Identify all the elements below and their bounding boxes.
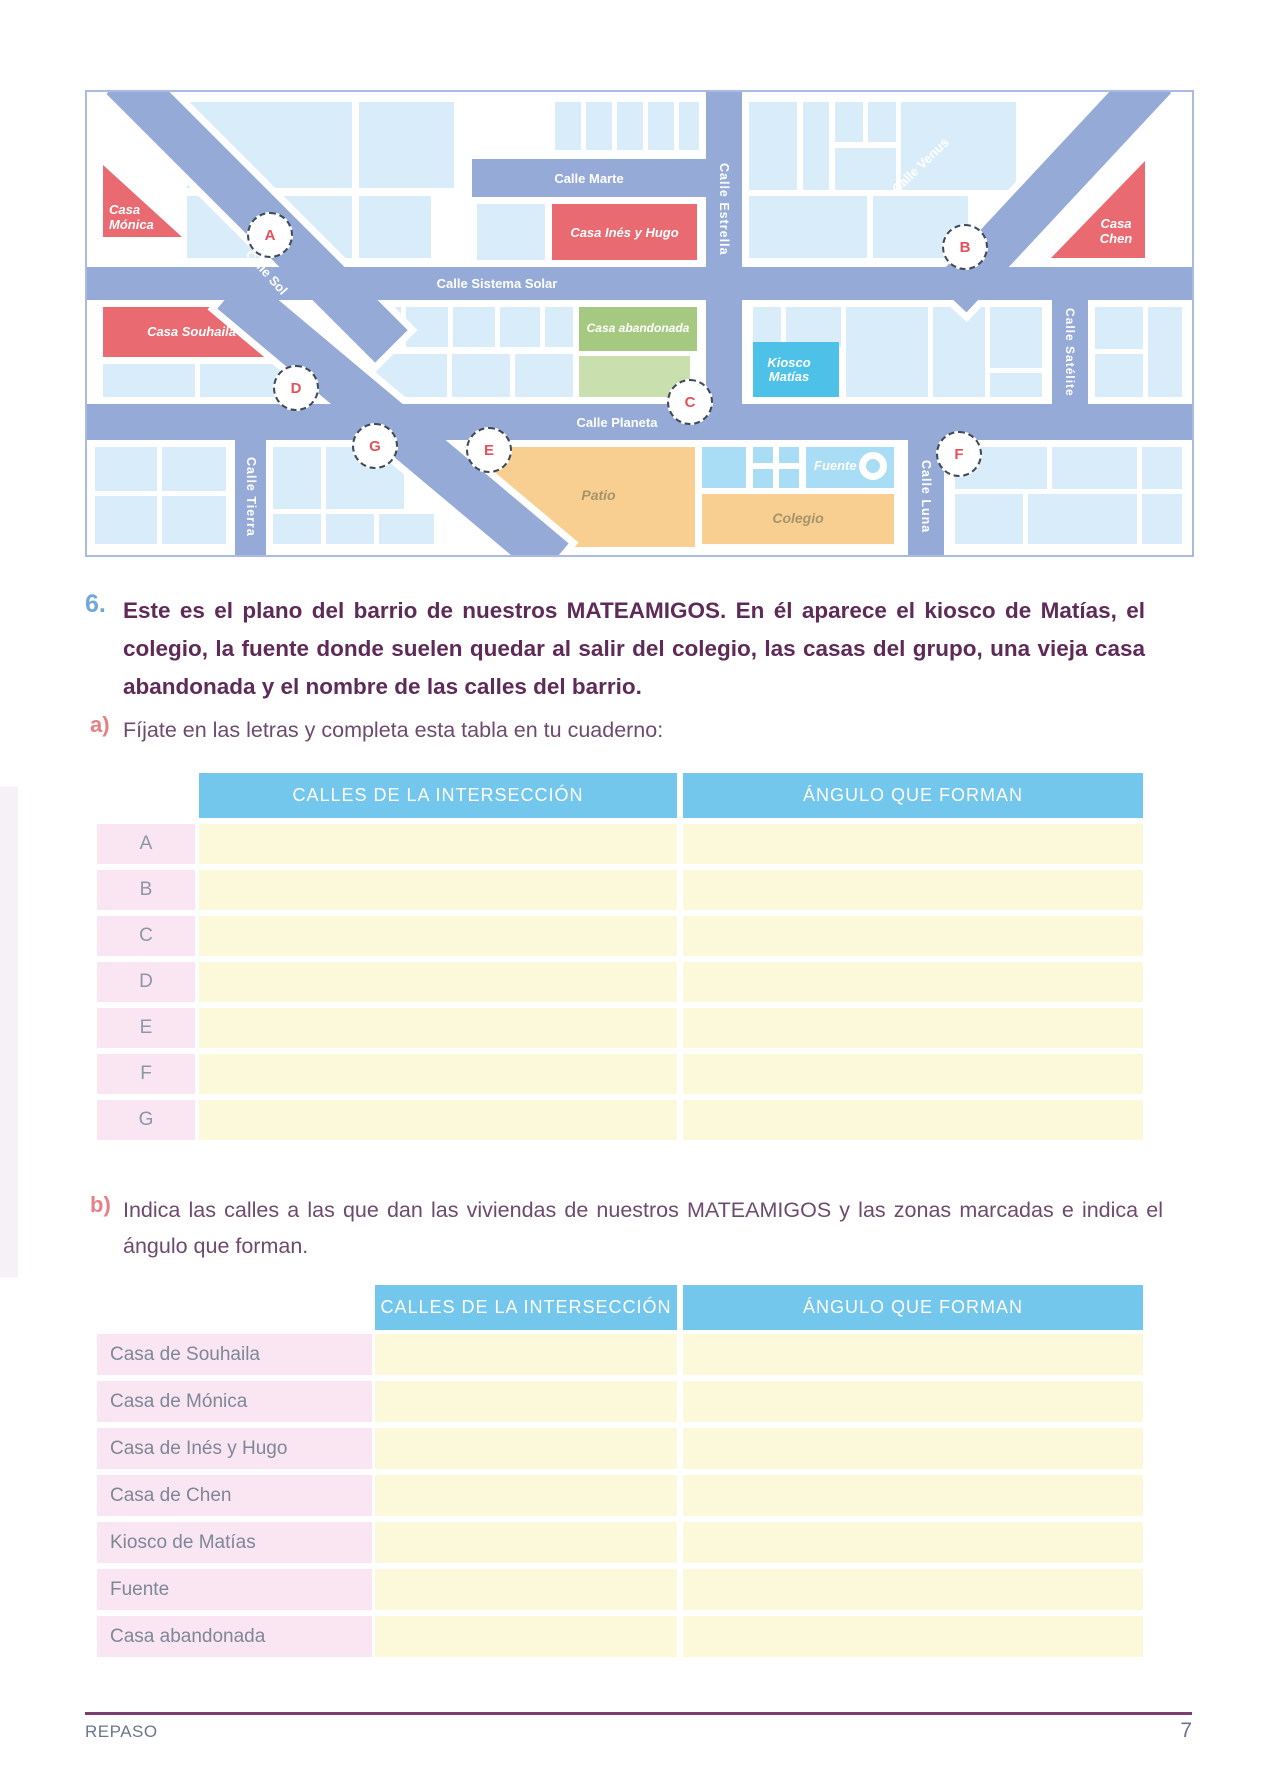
row-label-casa-ines-hugo: Casa de Inés y Hugo: [97, 1428, 372, 1469]
table-row: Casa de Souhaila: [97, 1334, 1143, 1375]
row-label-F: F: [97, 1054, 195, 1094]
answer-cell: [199, 824, 677, 864]
table-b-header-calles: CALLES DE LA INTERSECCIÓN: [375, 1285, 677, 1330]
city-block: [803, 102, 829, 190]
answer-cell: [683, 1008, 1143, 1048]
row-label-casa-souhaila: Casa de Souhaila: [97, 1334, 372, 1375]
marker-C-letter: C: [685, 394, 696, 411]
table-a-header-angulo: ÁNGULO QUE FORMAN: [683, 773, 1143, 818]
table-row: E: [97, 1008, 1143, 1048]
city-block: [477, 204, 545, 260]
calle-sistema-solar-label: Calle Sistema Solar: [337, 267, 657, 300]
row-label-C: C: [97, 916, 195, 956]
answer-cell: [375, 1569, 677, 1610]
row-label-casa-monica: Casa de Mónica: [97, 1381, 372, 1422]
answer-cell: [375, 1475, 677, 1516]
page-edge-strip: [0, 787, 18, 1277]
table-row: G: [97, 1100, 1143, 1140]
city-block: [500, 307, 540, 347]
marker-E-letter: E: [484, 442, 494, 459]
answer-cell: [199, 1054, 677, 1094]
row-label-G: G: [97, 1100, 195, 1140]
answer-cell: [375, 1334, 677, 1375]
part-b-instruction: Indica las calles a las que dan las vivi…: [123, 1192, 1163, 1264]
marker-E: E: [466, 427, 512, 473]
city-block: [586, 102, 612, 150]
city-block: [326, 514, 374, 544]
table-a: CALLES DE LA INTERSECCIÓN ÁNGULO QUE FOR…: [97, 773, 1143, 1146]
city-block: [359, 196, 431, 258]
row-label-casa-chen: Casa de Chen: [97, 1475, 372, 1516]
row-label-A: A: [97, 824, 195, 864]
table-row: Casa abandonada: [97, 1616, 1143, 1657]
calle-estrella-label: Calle Estrella: [709, 127, 739, 292]
answer-cell: [375, 1381, 677, 1422]
answer-cell: [375, 1616, 677, 1657]
city-block: [955, 494, 1023, 544]
table-row: Casa de Chen: [97, 1475, 1143, 1516]
city-block: [1142, 447, 1182, 489]
row-label-D: D: [97, 962, 195, 1002]
city-block: [1052, 447, 1137, 489]
city-block: [933, 342, 985, 398]
calle-tierra-label: Calle Tierra: [236, 444, 266, 550]
city-block: [379, 514, 434, 544]
city-block: [103, 364, 195, 400]
city-block: [617, 102, 643, 150]
city-block: [753, 307, 781, 347]
city-block: [990, 342, 1042, 368]
city-block: [846, 307, 928, 347]
city-block: [1148, 307, 1182, 398]
answer-cell: [683, 1475, 1143, 1516]
footer-page-number: 7: [1160, 1719, 1192, 1743]
answer-cell: [683, 1334, 1143, 1375]
footer-section-title: REPASO: [85, 1722, 158, 1742]
casa-abandonada-building: Casa abandonada: [579, 307, 697, 351]
colegio-building: Colegio: [702, 494, 894, 544]
table-row: F: [97, 1054, 1143, 1094]
answer-cell: [683, 1428, 1143, 1469]
fountain-area: Fuente: [806, 444, 894, 488]
problem-statement: Este es el plano del barrio de nuestros …: [123, 592, 1145, 706]
city-block: [359, 102, 454, 188]
city-block: [545, 307, 573, 347]
answer-cell: [683, 1381, 1143, 1422]
city-block: [1142, 494, 1182, 544]
city-block: [452, 354, 510, 400]
city-block: [162, 496, 226, 544]
casa-monica-building: Casa Mónica: [103, 165, 182, 237]
row-label-casa-abandonada: Casa abandonada: [97, 1616, 372, 1657]
answer-cell: [375, 1522, 677, 1563]
fountain-plaza-tile: [702, 444, 746, 488]
city-block: [868, 102, 896, 142]
table-b-header-angulo: ÁNGULO QUE FORMAN: [683, 1285, 1143, 1330]
city-block: [648, 102, 674, 150]
answer-cell: [199, 916, 677, 956]
answer-cell: [683, 962, 1143, 1002]
marker-G-letter: G: [369, 438, 381, 455]
fuente-label: Fuente: [806, 444, 894, 488]
city-block: [453, 307, 495, 347]
city-block: [95, 447, 157, 491]
table-row: B: [97, 870, 1143, 910]
city-block: [786, 307, 841, 347]
kiosco-matias-building: Kiosco Matías: [753, 342, 839, 398]
calle-planeta-label: Calle Planeta: [467, 404, 767, 440]
city-block: [1028, 494, 1137, 544]
answer-cell: [199, 870, 677, 910]
table-row: Casa de Inés y Hugo: [97, 1428, 1143, 1469]
row-label-E: E: [97, 1008, 195, 1048]
city-block: [1095, 354, 1143, 398]
answer-cell: [199, 1100, 677, 1140]
city-block: [162, 447, 226, 491]
part-a-label: a): [90, 712, 110, 738]
row-label-B: B: [97, 870, 195, 910]
casa-abandonada-label: Casa abandonada: [579, 307, 697, 351]
marker-D: D: [273, 365, 319, 411]
marker-G: G: [352, 423, 398, 469]
answer-cell: [199, 962, 677, 1002]
city-block: [273, 514, 321, 544]
answer-cell: [683, 870, 1143, 910]
fountain-plaza-grid: [753, 444, 799, 488]
marker-D-letter: D: [291, 380, 302, 397]
part-a-instruction: Fíjate en las letras y completa esta tab…: [123, 712, 1145, 748]
marker-F-letter: F: [954, 446, 963, 463]
table-row: C: [97, 916, 1143, 956]
city-block: [835, 102, 863, 142]
casa-monica-label: Casa Mónica: [103, 165, 165, 237]
answer-cell: [683, 1616, 1143, 1657]
table-row: Fuente: [97, 1569, 1143, 1610]
problem-number: 6.: [85, 590, 106, 619]
marker-A: A: [247, 212, 293, 258]
calle-satelite-label: Calle Satélite: [1055, 300, 1085, 404]
neighborhood-map: Casa Mónica Casa Souhaila Casa Inés y Hu…: [85, 90, 1194, 557]
table-row: A: [97, 824, 1143, 864]
city-block: [273, 447, 321, 509]
table-b: CALLES DE LA INTERSECCIÓN ÁNGULO QUE FOR…: [97, 1285, 1143, 1663]
answer-cell: [683, 916, 1143, 956]
answer-cell: [683, 1569, 1143, 1610]
table-a-header-calles: CALLES DE LA INTERSECCIÓN: [199, 773, 677, 818]
marker-B: B: [942, 224, 988, 270]
part-b-label: b): [90, 1192, 111, 1218]
table-row: Casa de Mónica: [97, 1381, 1143, 1422]
table-row: Kiosco de Matías: [97, 1522, 1143, 1563]
answer-cell: [683, 1522, 1143, 1563]
answer-cell: [375, 1428, 677, 1469]
marker-A-letter: A: [265, 227, 276, 244]
marker-B-letter: B: [960, 239, 971, 256]
answer-cell: [683, 1100, 1143, 1140]
city-block: [990, 373, 1042, 398]
city-block: [749, 196, 867, 258]
marker-F: F: [936, 431, 982, 477]
calle-marte-label: Calle Marte: [472, 159, 706, 197]
colegio-label: Colegio: [702, 494, 894, 544]
casa-ines-hugo-building: Casa Inés y Hugo: [552, 204, 697, 262]
answer-cell: [199, 1008, 677, 1048]
table-row: D: [97, 962, 1143, 1002]
answer-cell: [683, 824, 1143, 864]
casa-ines-hugo-label: Casa Inés y Hugo: [552, 204, 697, 262]
city-block: [990, 307, 1042, 347]
city-block: [95, 496, 157, 544]
city-block: [515, 354, 573, 400]
answer-cell: [683, 1054, 1143, 1094]
marker-C: C: [667, 379, 713, 425]
footer-divider: [85, 1712, 1192, 1715]
city-block: [200, 364, 280, 400]
city-block: [1095, 307, 1143, 349]
row-label-kiosco-matias: Kiosco de Matías: [97, 1522, 372, 1563]
city-block: [555, 102, 581, 150]
city-block: [749, 102, 797, 190]
row-label-fuente: Fuente: [97, 1569, 372, 1610]
city-block: [846, 342, 928, 398]
kiosco-matias-label: Kiosco Matías: [753, 342, 825, 398]
